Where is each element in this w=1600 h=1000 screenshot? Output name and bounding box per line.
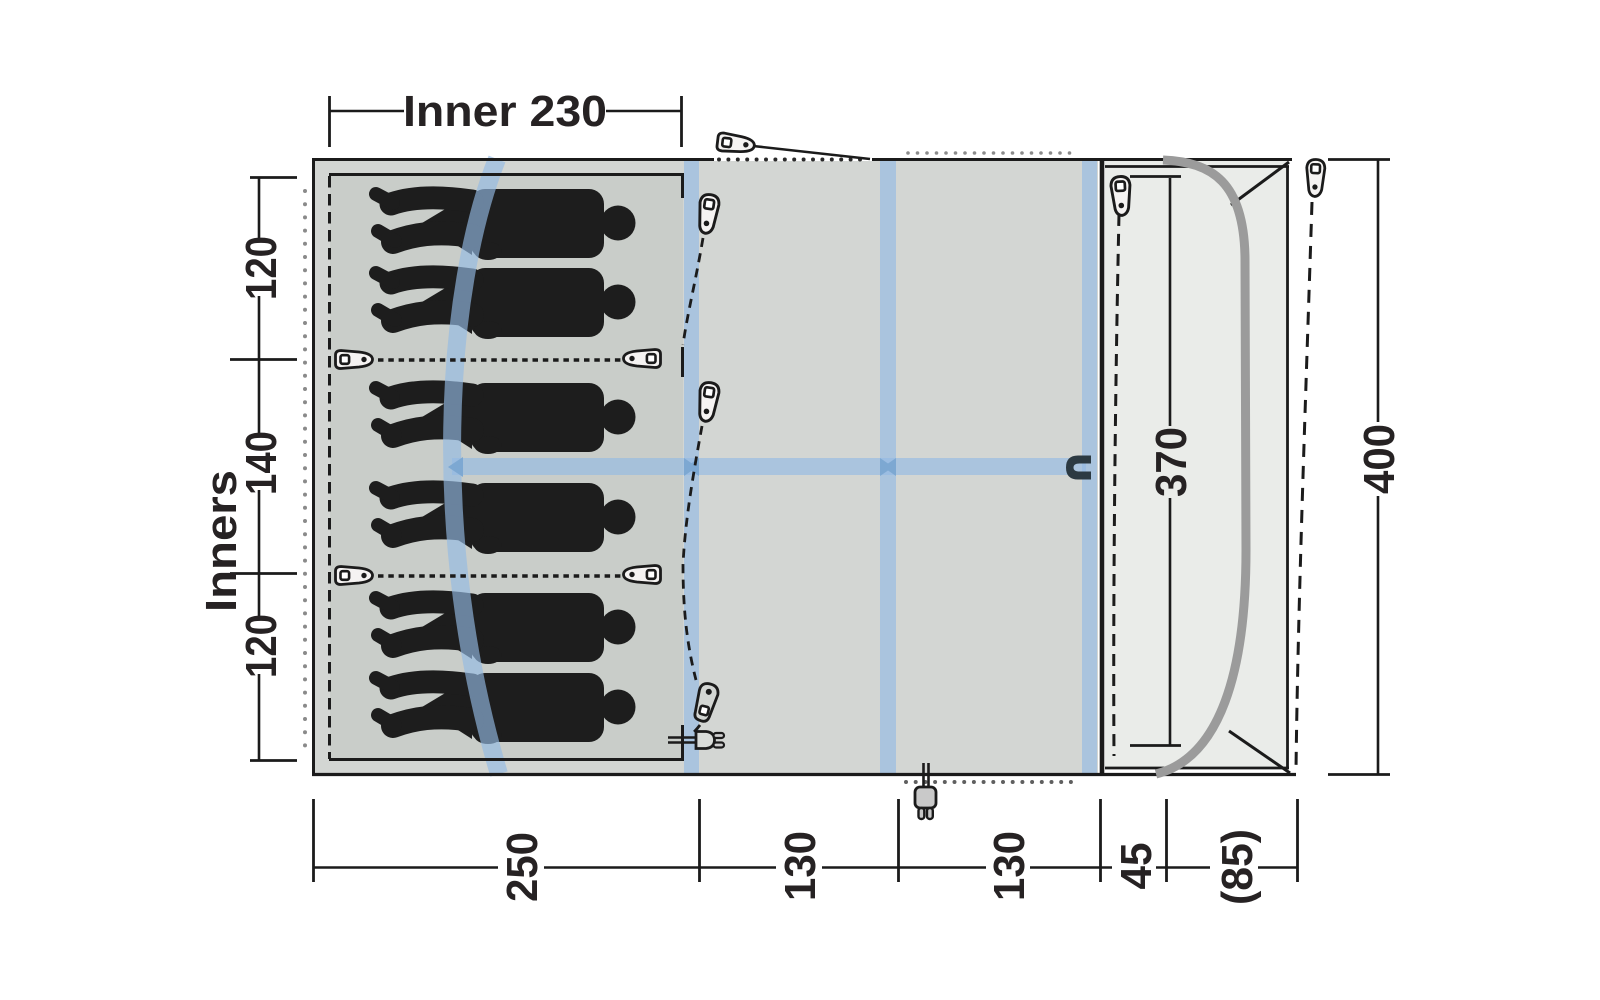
svg-text:120: 120 (237, 236, 286, 300)
svg-text:Inners: Inners (197, 470, 246, 612)
svg-text:130: 130 (985, 831, 1034, 901)
svg-text:Inner 230: Inner 230 (403, 87, 607, 136)
svg-text:(85): (85) (1213, 829, 1262, 905)
svg-text:370: 370 (1147, 427, 1196, 497)
svg-text:400: 400 (1355, 424, 1404, 494)
svg-text:250: 250 (498, 832, 547, 902)
svg-text:120: 120 (237, 614, 286, 678)
svg-text:130: 130 (776, 831, 825, 901)
svg-text:45: 45 (1112, 843, 1161, 890)
